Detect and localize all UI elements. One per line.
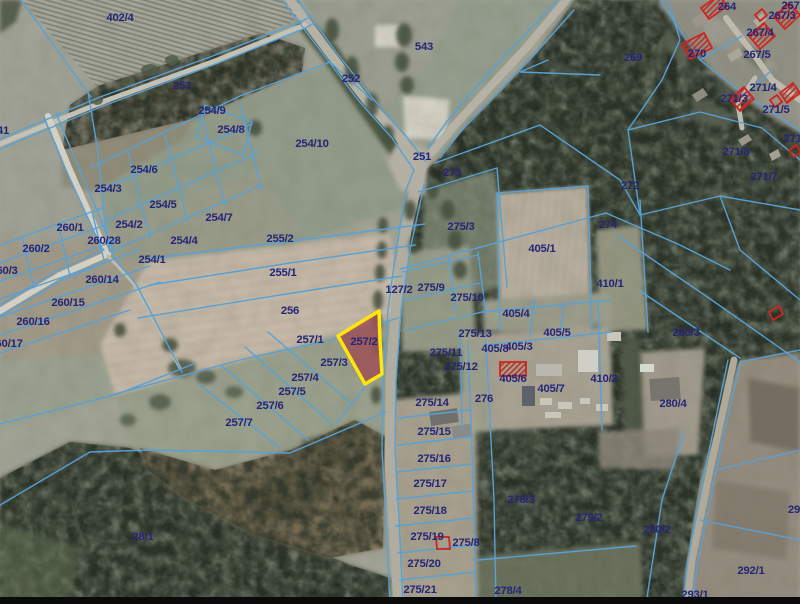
svg-text:260/1: 260/1	[56, 222, 83, 234]
svg-text:254/6: 254/6	[130, 164, 157, 176]
svg-text:260/28: 260/28	[87, 235, 120, 247]
svg-text:405/5: 405/5	[543, 327, 570, 339]
svg-text:254/1: 254/1	[138, 254, 165, 266]
svg-text:275/8: 275/8	[452, 537, 479, 549]
svg-text:271/4: 271/4	[749, 82, 777, 94]
svg-text:280/4: 280/4	[659, 398, 687, 410]
svg-text:405/7: 405/7	[537, 383, 564, 395]
svg-text:280/3: 280/3	[672, 327, 699, 339]
svg-text:275/20: 275/20	[407, 558, 440, 570]
svg-text:254/3: 254/3	[94, 183, 121, 195]
svg-text:275/21: 275/21	[403, 584, 436, 596]
svg-text:254/5: 254/5	[149, 199, 176, 211]
svg-text:254/8: 254/8	[217, 124, 244, 136]
svg-text:275/9: 275/9	[417, 282, 444, 294]
svg-text:271/2: 271/2	[783, 133, 800, 145]
svg-text:267/5: 267/5	[743, 49, 770, 61]
svg-text:274: 274	[599, 219, 618, 231]
svg-text:275/11: 275/11	[430, 347, 463, 359]
svg-text:275/3: 275/3	[447, 221, 474, 233]
svg-text:257/4: 257/4	[291, 372, 319, 384]
svg-text:257/3: 257/3	[320, 357, 347, 369]
svg-text:405/8: 405/8	[481, 343, 508, 355]
svg-text:254/2: 254/2	[115, 219, 142, 231]
svg-text:260/16: 260/16	[16, 316, 49, 328]
svg-text:280/2: 280/2	[643, 524, 670, 536]
svg-text:256: 256	[281, 305, 299, 317]
svg-text:252: 252	[342, 73, 360, 85]
svg-text:269: 269	[624, 52, 642, 64]
svg-text:260/15: 260/15	[51, 297, 84, 309]
svg-text:254/4: 254/4	[170, 235, 198, 247]
svg-text:254/9: 254/9	[198, 105, 225, 117]
svg-text:275/17: 275/17	[413, 478, 446, 490]
svg-text:271/7: 271/7	[750, 171, 777, 183]
svg-text:267/4: 267/4	[746, 27, 774, 39]
svg-text:275/15: 275/15	[417, 426, 450, 438]
svg-text:254/7: 254/7	[205, 212, 232, 224]
svg-text:264: 264	[718, 1, 737, 13]
svg-text:278/3: 278/3	[507, 494, 534, 506]
svg-text:543: 543	[415, 41, 433, 53]
svg-text:275/13: 275/13	[458, 328, 491, 340]
svg-text:279/2: 279/2	[575, 512, 602, 524]
svg-text:271/3: 271/3	[720, 93, 747, 105]
svg-text:275/10: 275/10	[450, 292, 483, 304]
svg-text:28/1: 28/1	[132, 531, 153, 543]
svg-text:41: 41	[0, 125, 9, 137]
svg-text:260/3: 260/3	[0, 265, 18, 277]
svg-text:257/7: 257/7	[225, 417, 252, 429]
svg-text:275/18: 275/18	[413, 505, 446, 517]
svg-text:275/12: 275/12	[444, 361, 477, 373]
svg-text:270: 270	[688, 48, 706, 60]
svg-text:267/3: 267/3	[768, 10, 795, 22]
svg-text:405/3: 405/3	[505, 341, 532, 353]
svg-text:255/1: 255/1	[269, 267, 296, 279]
svg-text:260/14: 260/14	[85, 274, 119, 286]
svg-text:278/4: 278/4	[494, 585, 522, 597]
svg-text:292/1: 292/1	[737, 565, 764, 577]
svg-text:276: 276	[475, 393, 493, 405]
svg-text:271/5: 271/5	[762, 104, 789, 116]
svg-text:257/5: 257/5	[278, 386, 305, 398]
svg-text:257/1: 257/1	[296, 334, 323, 346]
svg-text:272: 272	[621, 180, 639, 192]
svg-text:255/2: 255/2	[266, 233, 293, 245]
svg-text:254/10: 254/10	[295, 138, 328, 150]
svg-text:127/2: 127/2	[385, 284, 412, 296]
svg-text:405/4: 405/4	[502, 308, 530, 320]
svg-text:405/1: 405/1	[528, 243, 555, 255]
svg-text:260/17: 260/17	[0, 338, 23, 350]
svg-text:273: 273	[443, 167, 461, 179]
svg-text:271/8: 271/8	[722, 146, 749, 158]
svg-text:292: 292	[788, 504, 800, 516]
svg-text:257/6: 257/6	[256, 400, 283, 412]
svg-text:275/19: 275/19	[410, 531, 443, 543]
svg-text:251: 251	[413, 151, 431, 163]
svg-text:257/2: 257/2	[350, 336, 377, 348]
svg-text:405/6: 405/6	[499, 373, 526, 385]
svg-text:410/2: 410/2	[590, 373, 617, 385]
svg-text:260/2: 260/2	[22, 243, 49, 255]
svg-text:275/16: 275/16	[417, 453, 450, 465]
svg-text:402/4: 402/4	[106, 12, 134, 24]
svg-text:253: 253	[173, 80, 191, 92]
svg-text:275/14: 275/14	[415, 397, 449, 409]
svg-text:410/1: 410/1	[596, 278, 623, 290]
